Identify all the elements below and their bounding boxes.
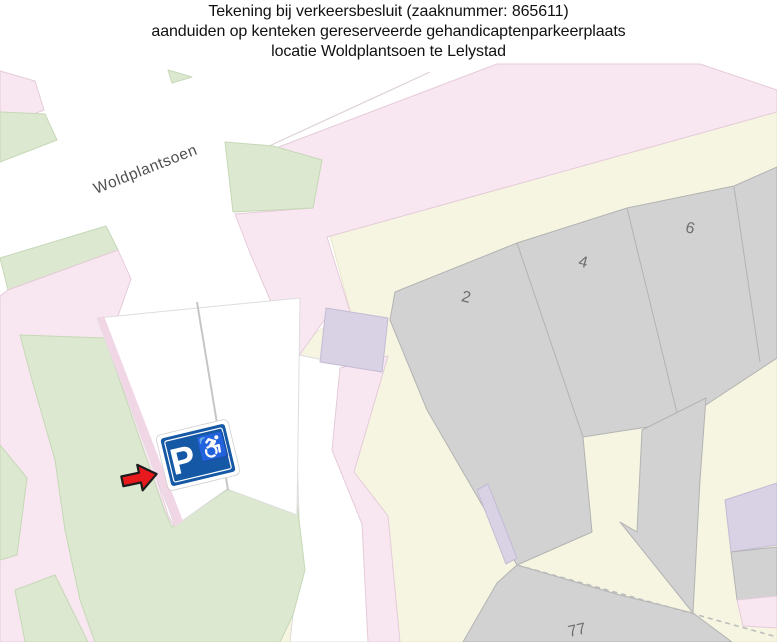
lavender-building-west <box>320 308 388 372</box>
title-block: Tekening bij verkeersbesluit (zaaknummer… <box>0 2 777 62</box>
gray-building-southeast <box>731 547 777 600</box>
title-line-2: aanduiden op kenteken gereserveerde geha… <box>0 22 777 42</box>
title-line-3: locatie Woldplantsoen te Lelystad <box>0 42 777 62</box>
house-number-77: 77 <box>567 620 588 640</box>
map-canvas: Woldplantsoen 2 4 6 77 P ♿ <box>0 0 777 642</box>
pink-patch-southeast <box>737 596 777 628</box>
title-line-1: Tekening bij verkeersbesluit (zaaknummer… <box>0 2 777 22</box>
map-svg: Woldplantsoen 2 4 6 77 P ♿ <box>0 0 777 642</box>
